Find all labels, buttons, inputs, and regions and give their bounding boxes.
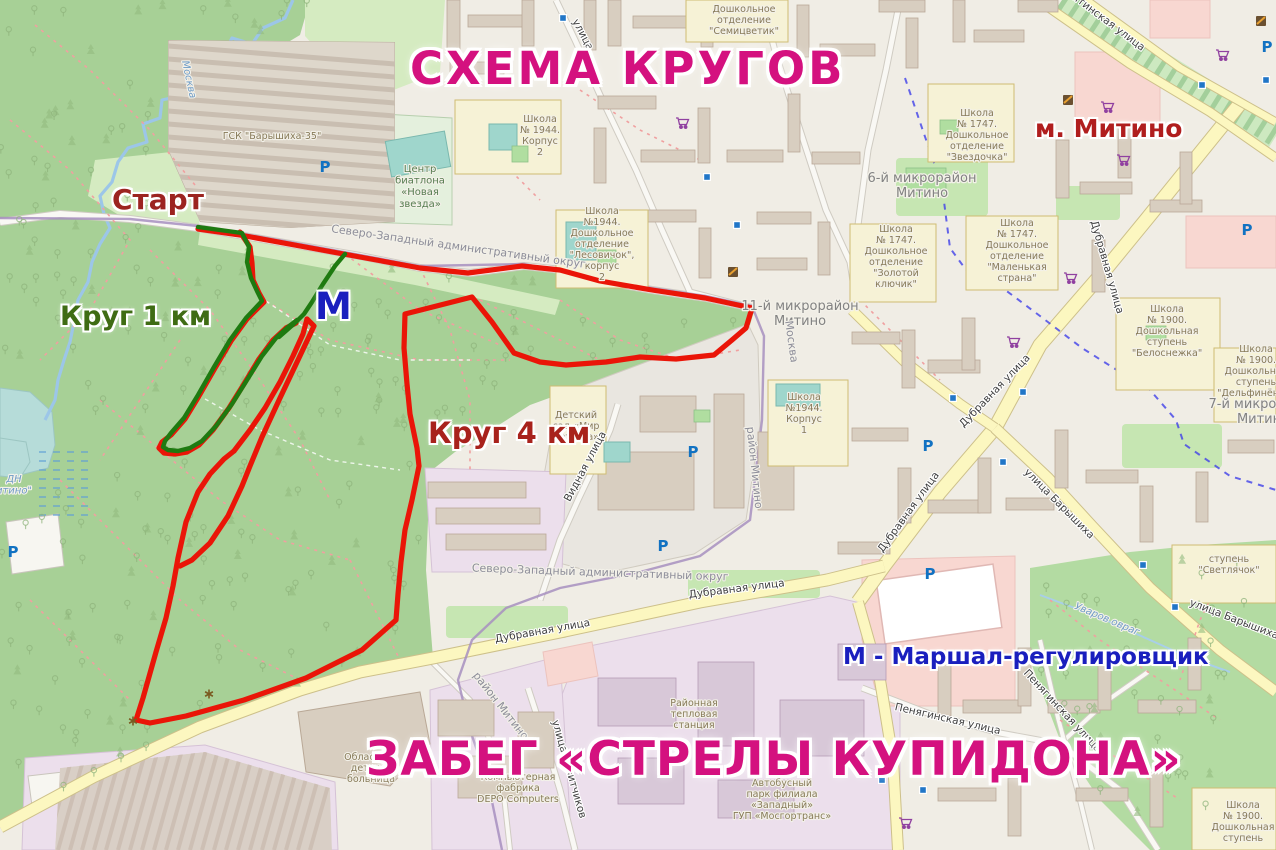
bus-stop-icon [1020, 389, 1027, 396]
lap-4km-label: Круг 4 км [428, 419, 590, 448]
metro-mitino-label: м. Митино [1035, 116, 1183, 141]
map-label: Районнаятепловаястанция [670, 698, 718, 731]
parking-icon: Р [1242, 221, 1253, 239]
bus-stop-icon [734, 222, 741, 229]
bus-stop-icon [1140, 562, 1147, 569]
parking-icon: Р [1262, 38, 1273, 56]
lap-1km-label: Круг 1 км [60, 303, 211, 330]
event-banner: ЗАБЕГ «СТРЕЛЫ КУПИДОНА» [366, 736, 1182, 783]
works-icon [1256, 16, 1266, 26]
works-icon [728, 267, 738, 277]
parking-icon: Р [923, 437, 934, 455]
marshal-marker: М [315, 288, 352, 325]
parking-icon: Р [658, 537, 669, 555]
bus-stop-icon [1199, 82, 1206, 89]
map-label: Дошкольноеотделение"Семицветик" [709, 4, 779, 37]
marshal-legend: М - Маршал-регулировщик [843, 646, 1209, 669]
bus-stop-icon [950, 395, 957, 402]
parking-icon: Р [320, 158, 331, 176]
map-label: ГСК "Барышиха-35" [223, 131, 322, 142]
map-screenshot: РРРРРРРРМоскваГСК "Барышиха-35"Центрбиат… [0, 0, 1276, 850]
bus-stop-icon [920, 787, 927, 794]
bus-stop-icon [560, 15, 567, 22]
works-icon [1063, 95, 1073, 105]
page-title: СХЕМА КРУГОВ [410, 46, 845, 91]
bus-stop-icon [1000, 459, 1007, 466]
parking-icon: Р [688, 443, 699, 461]
bus-stop-icon [1263, 77, 1270, 84]
parking-icon: Р [925, 565, 936, 583]
start-label: Старт [112, 186, 204, 214]
parking-icon: Р [8, 543, 19, 561]
bus-stop-icon [1172, 604, 1179, 611]
bus-stop-icon [704, 174, 711, 181]
